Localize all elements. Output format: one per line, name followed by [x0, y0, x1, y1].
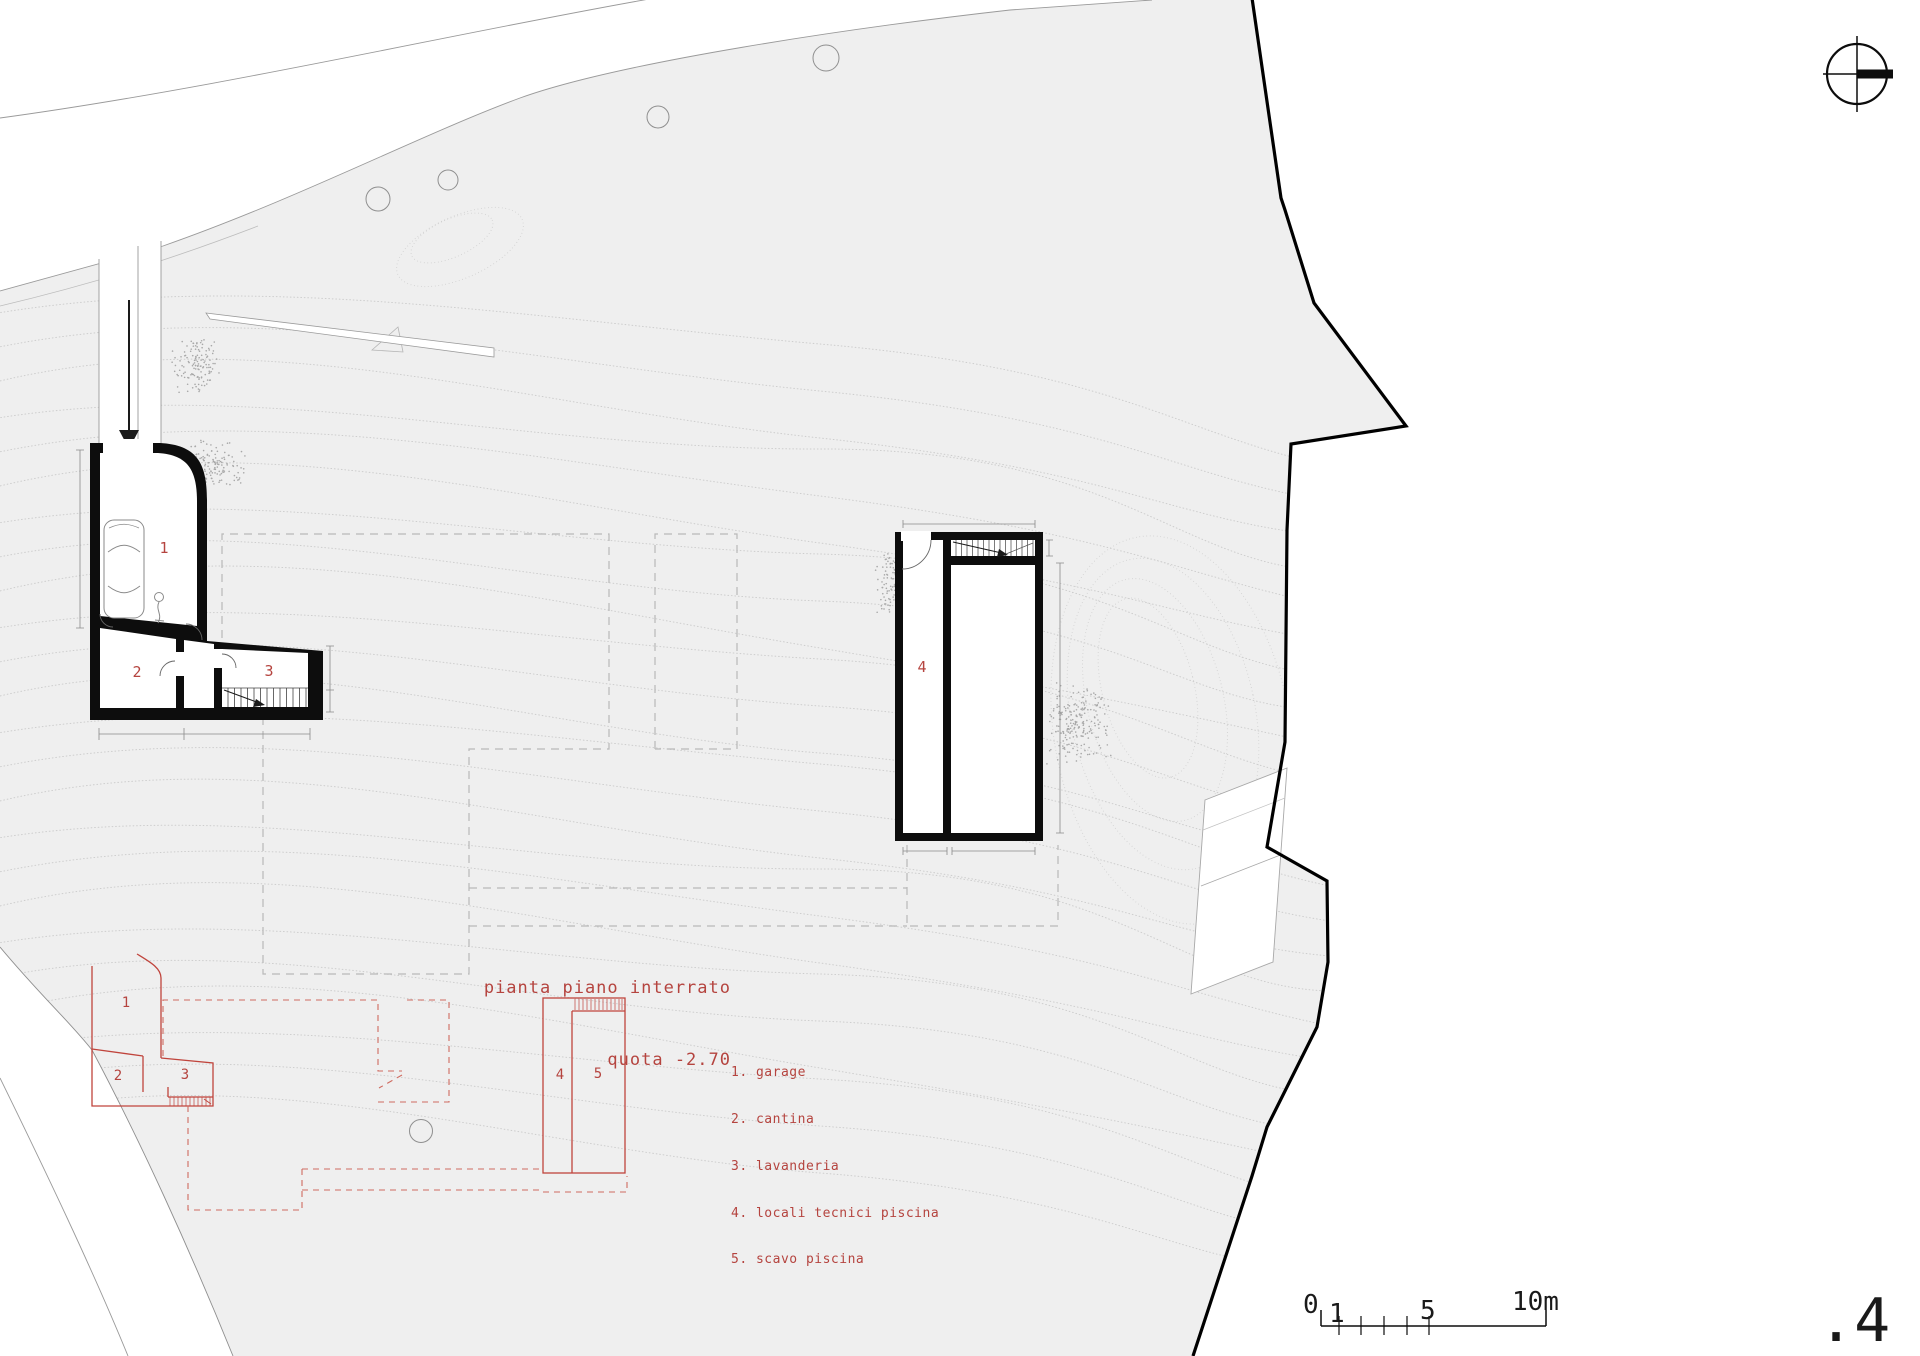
legend: 1. garage 2. cantina 3. lavanderia 4. lo… — [731, 1034, 939, 1284]
driveway-ramp — [99, 241, 161, 452]
legend-item-scavo-piscina: 5. scavo piscina — [731, 1252, 939, 1268]
room-label-garage: 1 — [153, 539, 175, 557]
scale-label-5: 5 — [1420, 1296, 1436, 1326]
sheet-number: .4 — [1818, 1286, 1890, 1356]
drawing-title-line1: pianta piano interrato — [420, 976, 731, 1000]
pool-building-plan — [895, 520, 1064, 855]
legend-item-locali-tecnici: 4. locali tecnici piscina — [731, 1206, 939, 1222]
scale-label-10m: 10m — [1512, 1287, 1559, 1317]
site-plan-drawing — [0, 0, 1920, 1356]
legend-item-cantina: 2. cantina — [731, 1112, 939, 1128]
legend-item-garage: 1. garage — [731, 1065, 939, 1081]
drawing-title-line2: quota -2.70 — [420, 1048, 731, 1072]
red-room-label-lavanderia: 3 — [174, 1067, 196, 1083]
room-label-lavanderia: 3 — [258, 662, 280, 680]
red-room-label-locali-tecnici: 4 — [549, 1067, 571, 1083]
north-arrow-icon — [1823, 36, 1893, 112]
room-label-cantina: 2 — [126, 663, 148, 681]
corridor — [184, 640, 214, 708]
scale-label-1: 1 — [1329, 1299, 1345, 1329]
existing-building — [1191, 768, 1287, 994]
legend-item-lavanderia: 3. lavanderia — [731, 1159, 939, 1175]
dividing-wall — [943, 540, 951, 833]
red-room-label-cantina: 2 — [107, 1068, 129, 1084]
red-room-label-scavo-piscina: 5 — [587, 1066, 609, 1082]
room-label-locali-tecnici: 4 — [911, 658, 933, 676]
drawing-title: pianta piano interrato quota -2.70 — [420, 928, 731, 1096]
scale-label-0: 0 — [1303, 1290, 1319, 1320]
red-room-label-garage: 1 — [115, 995, 137, 1011]
car-symbol — [104, 520, 144, 618]
drawing-sheet: pianta piano interrato quota -2.70 1. ga… — [0, 0, 1920, 1356]
